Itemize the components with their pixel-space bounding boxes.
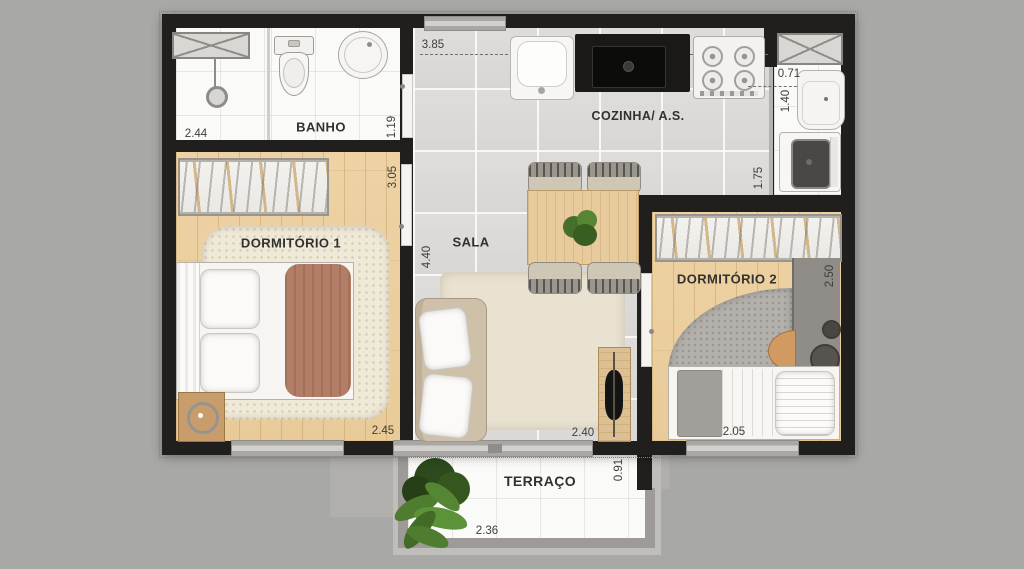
terrace-plant bbox=[392, 456, 482, 551]
burner bbox=[734, 70, 755, 91]
tub-basin bbox=[802, 81, 840, 125]
washer-door-dot bbox=[806, 159, 812, 165]
shower-rose bbox=[206, 86, 228, 108]
bed-pillow bbox=[200, 269, 260, 329]
sink-basin bbox=[344, 37, 382, 73]
door-handle bbox=[399, 224, 404, 229]
plant-foliage bbox=[573, 224, 597, 246]
single-bed bbox=[668, 366, 840, 440]
door-handle bbox=[400, 84, 405, 89]
cooktop-knob bbox=[623, 61, 634, 72]
banho-door bbox=[402, 74, 413, 138]
dim-cozinha-width: 3.85 bbox=[422, 39, 444, 51]
dining-set bbox=[527, 162, 639, 292]
room-label-dormitorio2: DORMITÓRIO 2 bbox=[677, 272, 777, 287]
wall bbox=[764, 28, 777, 67]
laundry-tub-icon bbox=[797, 70, 845, 130]
sink-basin bbox=[517, 41, 567, 87]
tub-drain bbox=[824, 97, 828, 101]
dorm2-wardrobe bbox=[655, 214, 842, 262]
nightstand bbox=[178, 392, 225, 442]
toilet-seat bbox=[283, 58, 305, 88]
sofa-pillow bbox=[418, 306, 473, 371]
dim-dorm2-width: 2.05 bbox=[723, 426, 745, 438]
dining-chair bbox=[528, 262, 582, 294]
bathroom-window-icon bbox=[172, 32, 250, 59]
table-plant bbox=[563, 208, 603, 248]
toilet-icon bbox=[274, 36, 314, 96]
dim-dorm1-depth: 3.05 bbox=[387, 166, 399, 188]
terrace-sliding-door bbox=[394, 441, 592, 456]
washer-panel bbox=[830, 137, 838, 187]
room-label-banho: BANHO bbox=[296, 120, 346, 135]
double-bed bbox=[176, 262, 354, 400]
dorm2-window bbox=[687, 441, 798, 456]
stove-knobs bbox=[700, 91, 758, 96]
toilet-button bbox=[288, 40, 300, 47]
sliding-door-handle bbox=[488, 444, 502, 453]
dim-servico-depth: 1.40 bbox=[780, 90, 792, 112]
dim-terraco-depth: 0.91 bbox=[613, 459, 625, 481]
nightstand-clock bbox=[187, 402, 219, 434]
service-window-icon bbox=[777, 33, 843, 65]
stove-icon bbox=[693, 36, 765, 99]
terrace-railing-right bbox=[645, 488, 655, 548]
kitchen-sink-icon bbox=[510, 36, 574, 100]
bed-headboard-sheet bbox=[177, 263, 200, 397]
dim-sala-width: 2.40 bbox=[572, 427, 594, 439]
burner bbox=[702, 70, 723, 91]
dim-terraco-width: 2.36 bbox=[476, 525, 498, 537]
washing-machine-icon bbox=[779, 132, 841, 192]
dim-sala-depth: 4.40 bbox=[421, 246, 433, 268]
burner bbox=[702, 46, 723, 67]
burner bbox=[734, 46, 755, 67]
dorm1-wardrobe bbox=[178, 158, 329, 216]
dim-banho-width: 2.44 bbox=[185, 128, 207, 140]
sofa bbox=[415, 298, 487, 442]
room-label-terraco: TERRAÇO bbox=[504, 473, 576, 489]
dim-dorm1-width: 2.45 bbox=[372, 425, 394, 437]
sink-drain bbox=[367, 42, 372, 47]
tv-rack bbox=[598, 347, 631, 442]
dim-banho-depth: 1.19 bbox=[386, 116, 398, 138]
kitchen-window bbox=[425, 17, 505, 30]
dim-servico-width: 0.71 bbox=[778, 68, 800, 80]
sofa-pillow bbox=[418, 373, 474, 440]
door-handle bbox=[649, 329, 654, 334]
dorm1-door bbox=[401, 164, 412, 246]
bed-runner bbox=[285, 264, 351, 397]
floor-plan: TERRAÇO 0.91 2.36 bbox=[0, 0, 1024, 569]
dim-dorm2-depth: 2.50 bbox=[824, 265, 836, 287]
wall bbox=[637, 455, 652, 490]
dorm2-door bbox=[641, 273, 652, 367]
room-label-dormitorio1: DORMITÓRIO 1 bbox=[241, 236, 341, 251]
round-sink-icon bbox=[338, 31, 388, 79]
bed-blanket bbox=[677, 370, 723, 437]
dim-servico-length: 1.75 bbox=[753, 167, 765, 189]
room-label-sala: SALA bbox=[453, 235, 490, 250]
sink-faucet bbox=[538, 87, 545, 94]
kitchen-counter bbox=[575, 34, 690, 92]
dining-chair bbox=[587, 262, 641, 294]
shower-head-icon bbox=[205, 58, 225, 106]
bed-pillow bbox=[775, 371, 835, 436]
tv-stand-line bbox=[613, 352, 615, 437]
room-label-cozinha: COZINHA/ A.S. bbox=[592, 109, 685, 123]
exterior-ledge-left bbox=[330, 453, 396, 517]
servico-partition bbox=[769, 63, 773, 195]
bed-pillow bbox=[200, 333, 260, 393]
dorm1-window bbox=[232, 441, 343, 456]
desk-lamp-shade bbox=[822, 320, 841, 339]
shower-partition bbox=[267, 28, 270, 140]
clock-center bbox=[198, 413, 203, 418]
